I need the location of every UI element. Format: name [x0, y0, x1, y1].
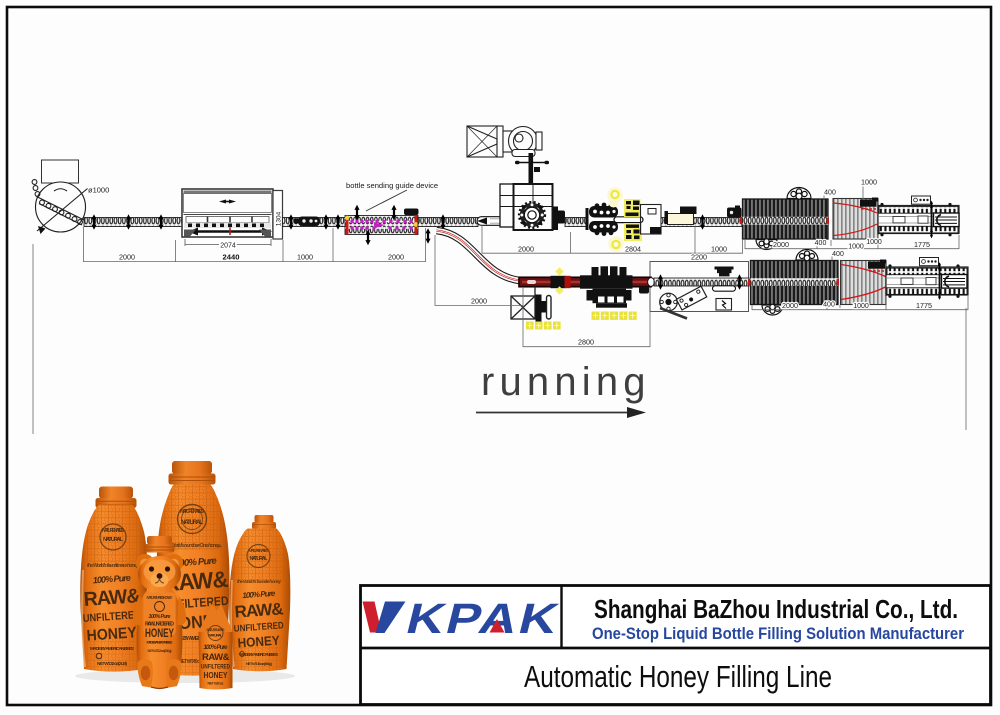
svg-text:1000: 1000 — [866, 239, 882, 246]
svg-text:HONEY: HONEY — [204, 671, 229, 680]
svg-text:NET WT. 32 oz (2 LB): NET WT. 32 oz (2 LB) — [97, 661, 127, 666]
svg-text:HONEY: HONEY — [237, 633, 280, 651]
svg-text:the World's favorite raw honey: the World's favorite raw honey — [87, 563, 140, 569]
svg-text:2440: 2440 — [223, 253, 240, 262]
svg-text:400: 400 — [815, 240, 827, 247]
svg-text:2200: 2200 — [691, 253, 707, 262]
svg-text:RAW&: RAW& — [202, 652, 230, 662]
svg-text:2000: 2000 — [518, 245, 534, 254]
svg-text:2804: 2804 — [625, 245, 641, 254]
svg-text:1775: 1775 — [916, 301, 932, 310]
svg-text:1000: 1000 — [853, 303, 869, 310]
svg-text:Shanghai BaZhou Industrial Co.: Shanghai BaZhou Industrial Co., Ltd. — [594, 594, 958, 624]
svg-text:NATURAL: NATURAL — [103, 537, 123, 543]
svg-text:1304: 1304 — [276, 211, 283, 226]
svg-text:NET 0.63 oz: NET 0.63 oz — [208, 682, 224, 686]
svg-text:MADE BY AMERICAN BEES: MADE BY AMERICAN BEES — [240, 652, 278, 657]
svg-text:RAW/UNFILTERED: RAW/UNFILTERED — [145, 622, 174, 628]
svg-text:RAW&: RAW& — [234, 599, 284, 621]
svg-text:MADE BY AMERICAN BEES: MADE BY AMERICAN BEES — [90, 646, 135, 652]
svg-text:2000: 2000 — [471, 297, 487, 306]
svg-text:1000: 1000 — [848, 244, 864, 251]
svg-text:2000: 2000 — [773, 240, 789, 249]
svg-text:the World's favorite honey: the World's favorite honey — [237, 579, 281, 585]
svg-text:NATURAL: NATURAL — [209, 633, 224, 638]
svg-text:NATURE NATE'S: NATURE NATE'S — [249, 548, 269, 553]
svg-text:2000: 2000 — [388, 253, 404, 262]
svg-text:NATURE NATE'S: NATURE NATE'S — [102, 528, 125, 534]
svg-text:running: running — [481, 360, 651, 404]
svg-text:2000: 2000 — [782, 301, 798, 310]
svg-text:1775: 1775 — [914, 240, 930, 249]
svg-text:Automatic Honey Filling Line: Automatic Honey Filling Line — [524, 659, 832, 694]
svg-text:400: 400 — [824, 190, 836, 197]
svg-text:MADE BY AMERICAN BEES: MADE BY AMERICAN BEES — [147, 640, 173, 645]
svg-text:NATURE NATE'S HONEY: NATURE NATE'S HONEY — [147, 595, 173, 600]
svg-text:2000: 2000 — [119, 253, 135, 262]
svg-text:2800: 2800 — [578, 338, 594, 347]
svg-text:NET WT. 16 oz (454 g): NET WT. 16 oz (454 g) — [246, 661, 273, 666]
svg-text:HONEY: HONEY — [86, 624, 138, 644]
svg-text:ø1000: ø1000 — [88, 186, 109, 195]
svg-text:400: 400 — [832, 251, 844, 258]
svg-text:100% Pure: 100% Pure — [204, 644, 229, 651]
svg-text:1000: 1000 — [861, 178, 877, 187]
svg-text:NATURE NATE'S: NATURE NATE'S — [207, 628, 226, 632]
svg-text:2074: 2074 — [220, 243, 236, 250]
svg-text:HONEY: HONEY — [145, 628, 174, 640]
svg-text:NATURAL: NATURAL — [250, 556, 269, 562]
svg-text:One-Stop Liquid Bottle Filling: One-Stop Liquid Bottle Filling Solution … — [592, 625, 965, 643]
svg-text:100% Pure: 100% Pure — [149, 614, 171, 620]
svg-text:UNFILTERED: UNFILTERED — [201, 664, 230, 671]
svg-text:NATURAL: NATURAL — [181, 519, 203, 526]
svg-text:bottle sending guide device: bottle sending guide device — [346, 181, 438, 190]
svg-text:1000: 1000 — [297, 253, 313, 262]
svg-text:NATURE NATE'S: NATURE NATE'S — [180, 509, 205, 515]
svg-text:NET WT. 12 oz (340 g): NET WT. 12 oz (340 g) — [148, 648, 173, 653]
svg-text:1000: 1000 — [711, 245, 727, 254]
svg-text:400: 400 — [823, 302, 835, 309]
svg-text:RAW&: RAW& — [83, 585, 141, 611]
svg-text:KPAK: KPAK — [402, 596, 566, 643]
